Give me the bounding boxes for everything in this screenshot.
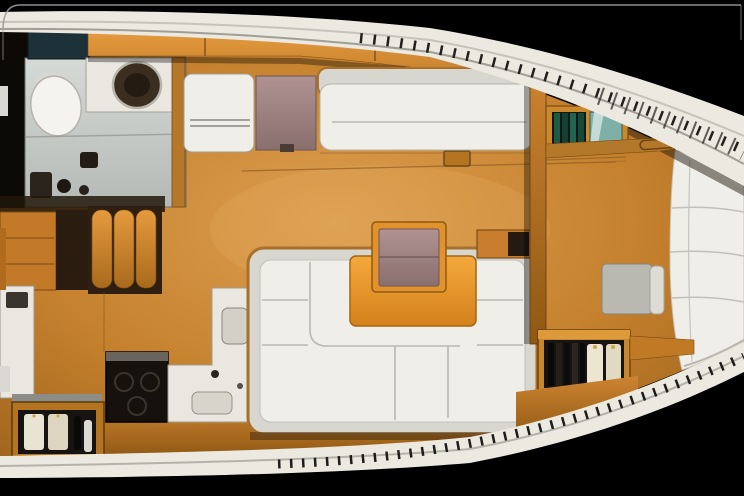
hanger-hook bbox=[32, 414, 35, 417]
galley-sink bbox=[222, 308, 248, 344]
companionway bbox=[0, 206, 162, 294]
galley-sink-2 bbox=[192, 392, 232, 414]
floor-hatch bbox=[444, 151, 470, 166]
stove-rail bbox=[106, 352, 168, 361]
vanity-sink-bowl bbox=[124, 73, 150, 97]
nav-seat bbox=[184, 74, 254, 152]
berth-corner-cushion bbox=[650, 266, 664, 314]
hanger-hook bbox=[56, 414, 59, 417]
hull-cut-edge-top bbox=[0, 28, 28, 62]
hanging-shirt bbox=[48, 414, 68, 450]
hull-cut-edge bbox=[0, 56, 25, 208]
companionway-well bbox=[56, 210, 90, 290]
yacht-layout-image bbox=[0, 0, 744, 496]
wardrobe-top bbox=[538, 330, 630, 339]
vanity-stool bbox=[602, 264, 652, 314]
hanging-shirt bbox=[587, 344, 603, 386]
port-sink bbox=[6, 292, 28, 308]
chart-table-latch bbox=[280, 144, 294, 152]
yacht-floorplan bbox=[0, 0, 744, 496]
faucet bbox=[211, 370, 219, 378]
chart-table bbox=[256, 76, 316, 150]
head-bulkhead bbox=[172, 58, 185, 207]
hull-notch bbox=[0, 366, 10, 392]
bulkhead-shadow bbox=[524, 64, 530, 344]
faucet-handle bbox=[237, 383, 243, 389]
dark-garment bbox=[74, 416, 81, 450]
stove bbox=[106, 352, 168, 422]
hull-notch bbox=[0, 86, 8, 116]
aft-locker bbox=[0, 212, 56, 290]
bottle bbox=[84, 420, 92, 452]
straight-settee bbox=[320, 84, 532, 150]
hull-wood-sliver bbox=[0, 228, 6, 290]
aft-wardrobe bbox=[12, 394, 104, 460]
hanger-hook bbox=[611, 345, 615, 349]
bulkhead bbox=[530, 62, 546, 344]
hanger-hook bbox=[593, 345, 597, 349]
companionway-steps bbox=[92, 210, 156, 288]
hanging-shirt bbox=[24, 414, 44, 450]
